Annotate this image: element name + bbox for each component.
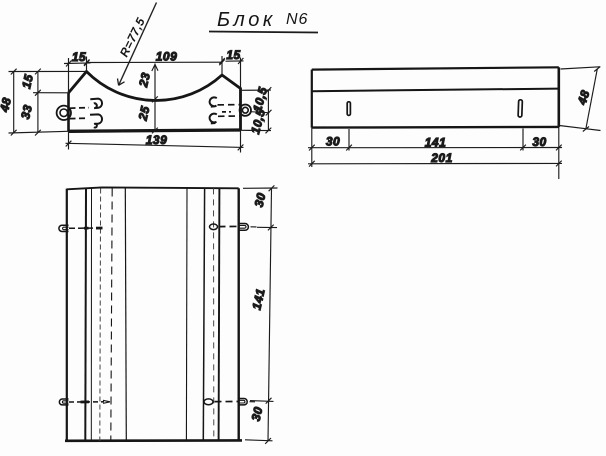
svg-text:Блок: Блок	[217, 9, 276, 31]
svg-text:30: 30	[532, 135, 546, 149]
svg-text:109: 109	[156, 49, 178, 63]
svg-text:139: 139	[146, 133, 168, 147]
svg-text:141: 141	[425, 136, 447, 150]
svg-text:N6: N6	[286, 11, 308, 28]
svg-text:201: 201	[430, 151, 453, 165]
svg-text:15: 15	[226, 48, 240, 62]
svg-text:30: 30	[326, 134, 340, 148]
svg-text:15: 15	[72, 50, 86, 64]
